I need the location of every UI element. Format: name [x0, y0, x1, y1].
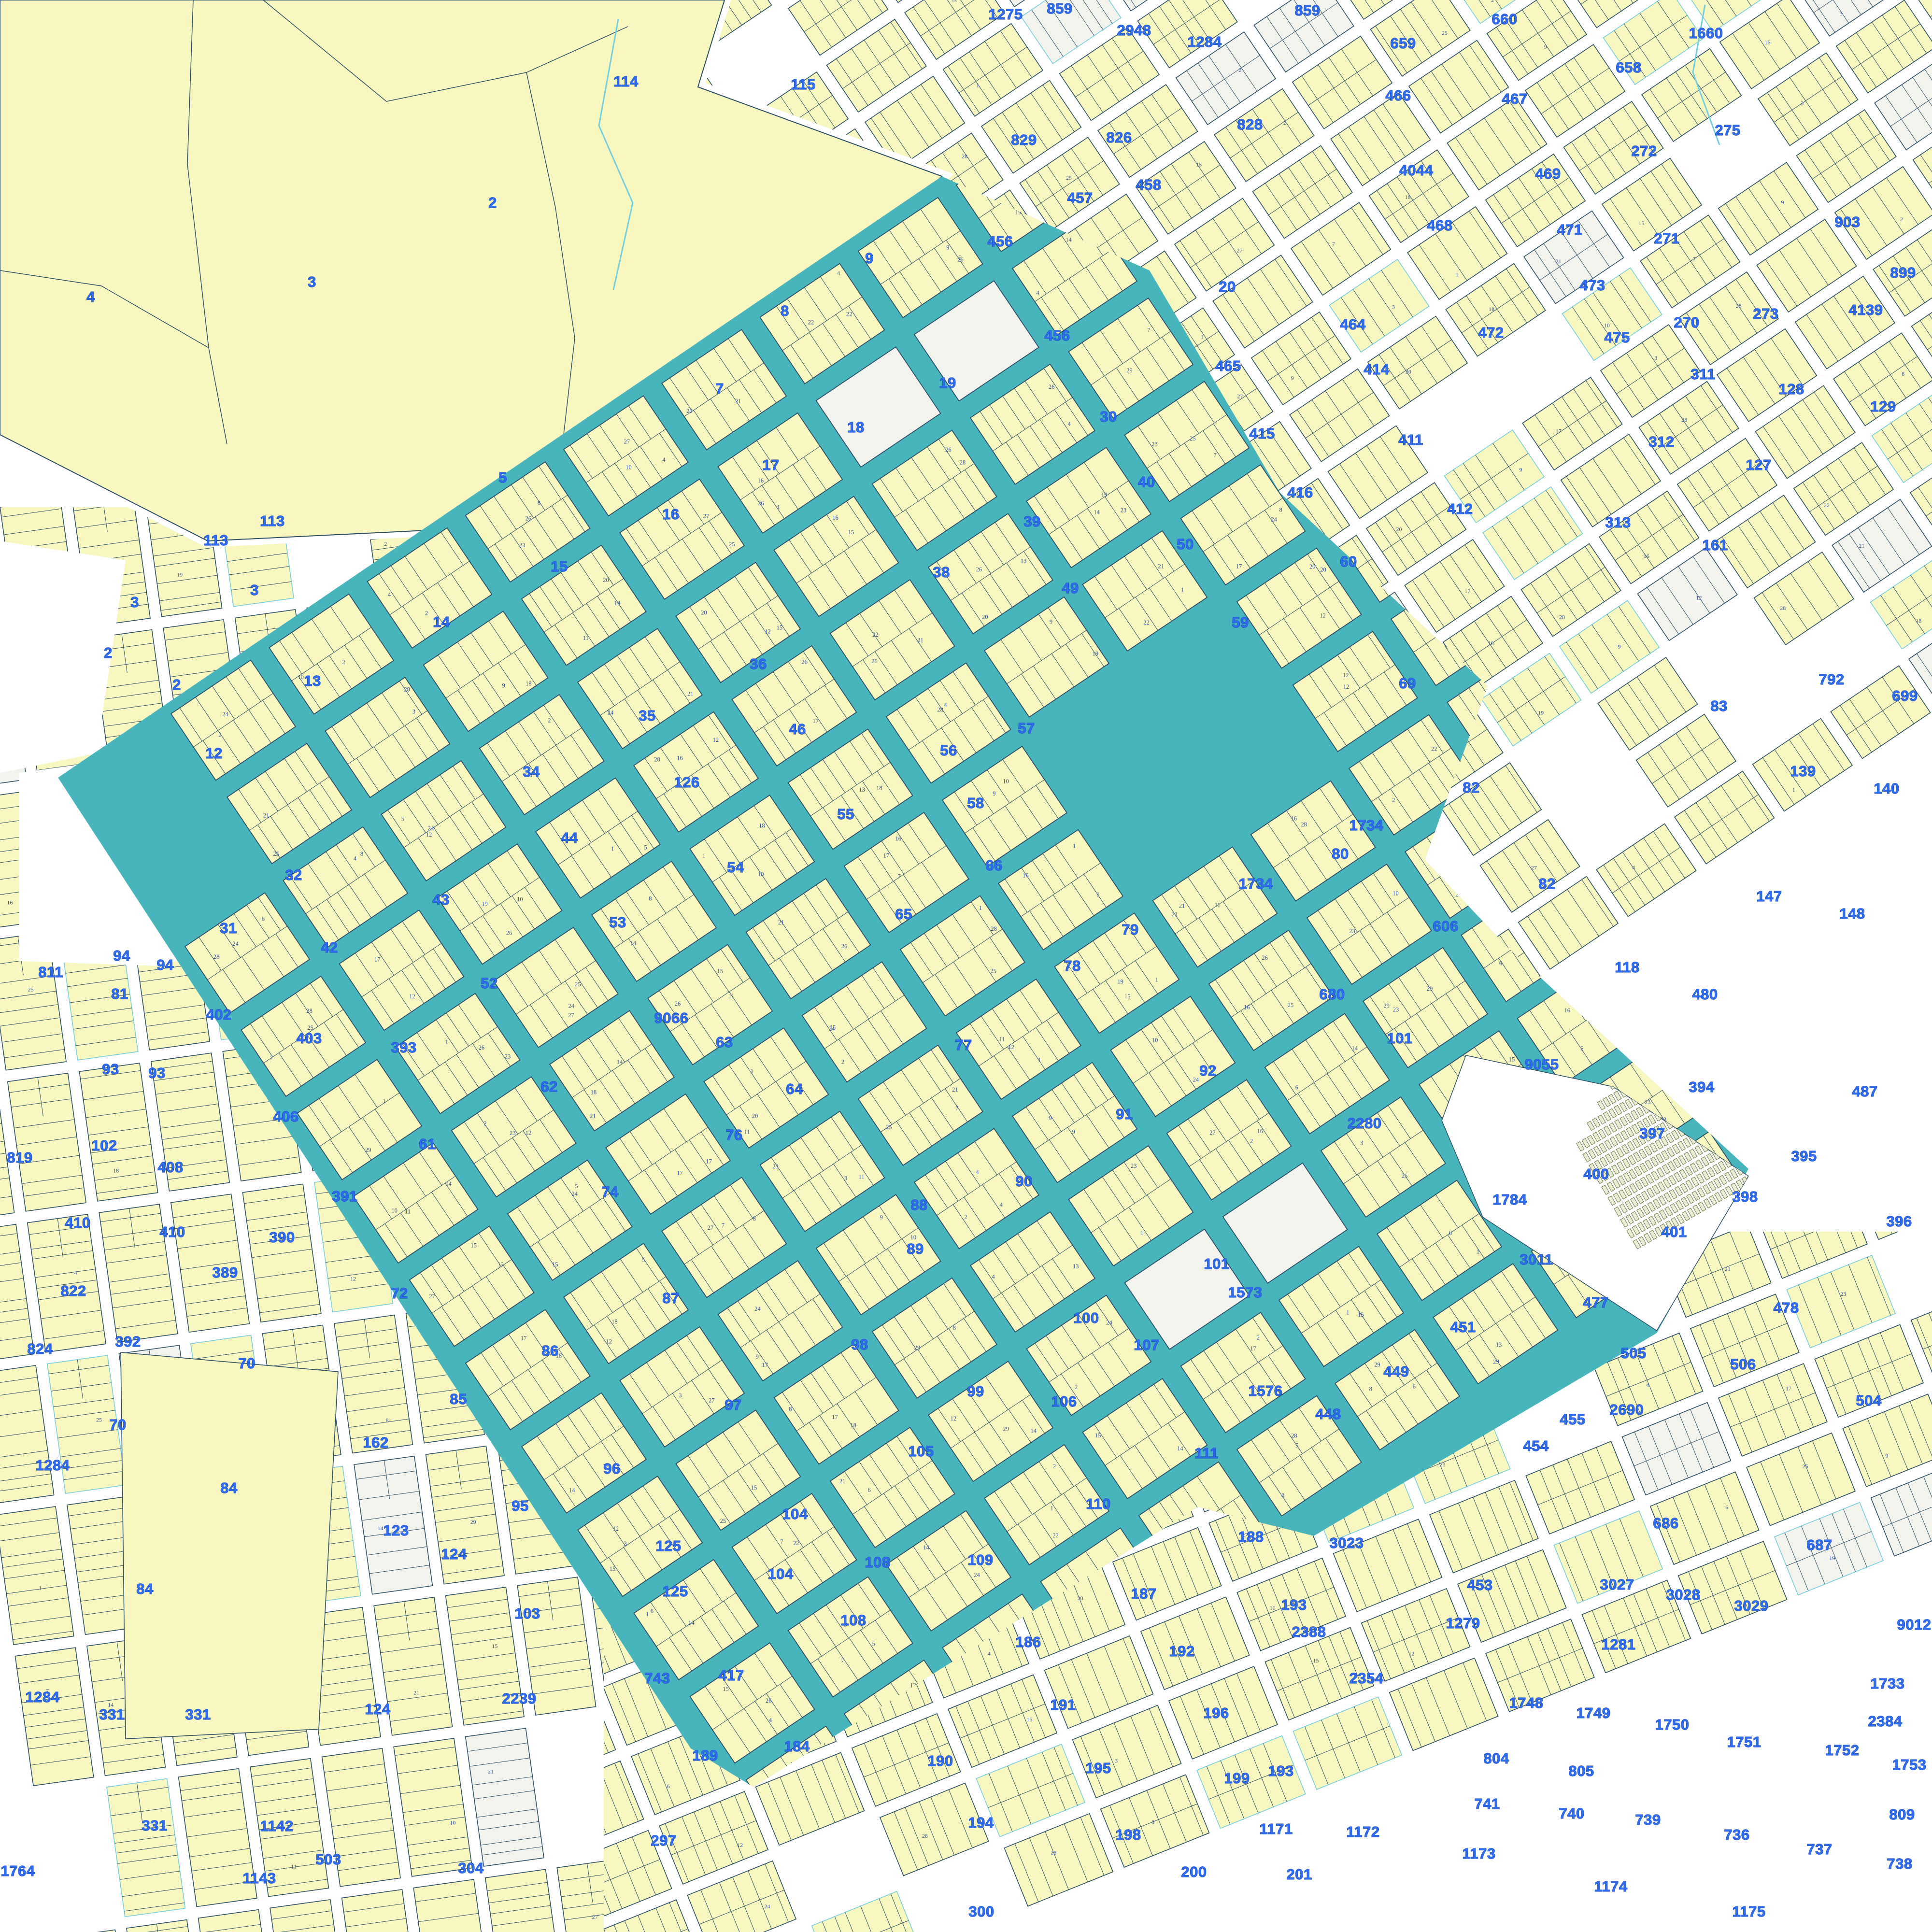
- parcel-number: 12: [765, 628, 771, 635]
- block-label: 199: [1224, 1770, 1250, 1787]
- parcel-number: 8: [1151, 1819, 1154, 1826]
- parcel-number: 28: [404, 686, 410, 693]
- block-label: 1751: [1727, 1733, 1762, 1750]
- block-label: 415: [1249, 425, 1275, 442]
- block-label: 91: [1116, 1106, 1133, 1122]
- parcel-number: 1: [1181, 586, 1184, 593]
- block-label: 1752: [1825, 1742, 1860, 1759]
- block-label: 416: [1287, 484, 1313, 501]
- block-label: 658: [1616, 59, 1641, 76]
- block-label: 397: [1639, 1125, 1665, 1142]
- block-label: 737: [1806, 1841, 1832, 1858]
- parcel-number: 15: [1358, 1311, 1364, 1318]
- parcel-number: 16: [1564, 1007, 1570, 1014]
- block-label: 60: [1340, 553, 1357, 570]
- block-label: 456: [1044, 327, 1070, 344]
- parcel-number: 28: [922, 1833, 928, 1839]
- block-label: 140: [1874, 780, 1899, 797]
- parcel-number: 27: [429, 1293, 435, 1300]
- block-label: 828: [1237, 116, 1263, 133]
- block-label: 84: [136, 1580, 154, 1597]
- block-label: 401: [1661, 1223, 1687, 1240]
- block-label: 456: [987, 233, 1013, 250]
- block-label: 190: [927, 1752, 953, 1769]
- block-label: 191: [1050, 1696, 1076, 1713]
- block-label: 829: [1011, 131, 1037, 148]
- block-label: 389: [212, 1264, 238, 1281]
- parcel-number: 4: [388, 591, 391, 598]
- parcel-number: 2: [1250, 1138, 1253, 1145]
- parcel-number: 10: [910, 1234, 917, 1241]
- parcel-number: 16: [1764, 39, 1770, 45]
- parcel-number: 15: [717, 967, 724, 974]
- block-label: 331: [185, 1706, 211, 1723]
- parcel-number: 22: [808, 319, 814, 326]
- block-label: 740: [1559, 1805, 1584, 1822]
- block-label: 82: [1538, 875, 1555, 892]
- block-label: 686: [1653, 1515, 1678, 1532]
- parcel-number: 3: [1115, 1757, 1118, 1764]
- block-label: 3028: [1666, 1586, 1701, 1603]
- parcel-number: 1: [39, 1585, 42, 1591]
- block-label: 78: [1064, 957, 1080, 974]
- block-label: 85: [450, 1391, 467, 1407]
- parcel-number: 27: [1236, 247, 1242, 254]
- block-label: 1173: [1462, 1845, 1495, 1862]
- block-label: 114: [613, 73, 639, 90]
- parcel-number: 9: [502, 682, 505, 689]
- parcel-number: 16: [1291, 815, 1297, 822]
- parcel-number: 15: [1095, 1432, 1101, 1439]
- block-label: 859: [1294, 2, 1320, 19]
- block-label: 30: [1100, 408, 1117, 425]
- block-label: 93: [148, 1065, 165, 1081]
- parcel-number: 29: [470, 1519, 476, 1525]
- parcel-number: 14: [630, 940, 637, 947]
- parcel-number: 17: [1786, 1385, 1791, 1392]
- parcel-number: 12: [1343, 672, 1349, 679]
- block-label: 77: [955, 1037, 972, 1053]
- parcel-number: 28: [1301, 821, 1307, 828]
- parcel-number: 28: [1736, 302, 1742, 309]
- parcel-number: 1: [1050, 1505, 1053, 1512]
- parcel-number: 1: [1038, 1057, 1041, 1064]
- parcel-number: 21: [263, 812, 270, 819]
- block-label: 313: [1605, 514, 1631, 531]
- block-label: 115: [791, 76, 816, 93]
- block-label: 16: [662, 506, 679, 523]
- block-label: 20: [1219, 278, 1236, 295]
- block-label: 50: [1177, 536, 1193, 553]
- block-label: 2384: [1868, 1713, 1903, 1730]
- parcel-number: 23: [1440, 1461, 1446, 1468]
- parcel-number: 29: [914, 1345, 921, 1351]
- parcel-number: 16: [1244, 1004, 1250, 1010]
- block-label: 110: [1086, 1495, 1111, 1512]
- parcel-number: 10: [1270, 1605, 1276, 1611]
- parcel-number: 5: [1295, 1442, 1298, 1449]
- parcel-number: 2: [483, 1120, 486, 1127]
- parcel-number: 11: [1215, 902, 1221, 909]
- block-label: 1660: [1689, 25, 1723, 42]
- block-label: 454: [1523, 1437, 1548, 1454]
- parcel-number: 7: [897, 873, 900, 880]
- block-label: 453: [1467, 1577, 1492, 1593]
- parcel-number: 10: [450, 1819, 455, 1826]
- block-label: 125: [655, 1537, 681, 1554]
- parcel-number: 2: [1491, 0, 1494, 3]
- parcel-number: 15: [610, 1565, 616, 1572]
- parcel-number: 11: [728, 993, 734, 1000]
- block-label: 111: [1194, 1445, 1219, 1462]
- block-label: 467: [1502, 90, 1527, 107]
- parcel-number: 12: [951, 1415, 957, 1422]
- block-label: 480: [1692, 986, 1718, 1003]
- block-label: 125: [662, 1583, 688, 1600]
- parcel-number: 12: [426, 831, 432, 838]
- block-label: 3023: [1330, 1534, 1364, 1551]
- block-label: 118: [1615, 959, 1640, 976]
- block-label: 477: [1583, 1294, 1608, 1311]
- block-label: 99: [967, 1383, 984, 1400]
- block-label: 194: [968, 1814, 994, 1831]
- parcel-number: 21: [1725, 1265, 1731, 1272]
- parcel-number: 26: [526, 515, 532, 522]
- parcel-number: 5: [872, 1641, 875, 1648]
- parcel-number: 18: [591, 1089, 597, 1096]
- parcel-number: 20: [1396, 526, 1402, 533]
- parcel-number: 24: [1106, 1319, 1112, 1326]
- block-label: 97: [724, 1396, 741, 1413]
- parcel-number: 1: [1201, 333, 1204, 340]
- block-label: 52: [481, 975, 497, 992]
- block-label: 40: [1138, 473, 1155, 490]
- block-label: 859: [1047, 0, 1072, 17]
- parcel-number: 27: [1237, 393, 1243, 399]
- block-label: 103: [514, 1605, 540, 1622]
- block-label: 46: [789, 721, 806, 738]
- parcel-number: 21: [1179, 903, 1185, 909]
- block-label: 824: [27, 1340, 53, 1357]
- block-label: 147: [1756, 888, 1782, 905]
- parcel-number: 14: [1352, 1045, 1358, 1052]
- parcel-number: 17: [1464, 588, 1470, 595]
- parcel-number: 4: [992, 1274, 995, 1280]
- block-label: 4139: [1849, 301, 1883, 318]
- block-label: 478: [1773, 1299, 1799, 1316]
- parcel-number: 9: [1291, 375, 1294, 382]
- block-label: 9055: [1525, 1056, 1559, 1073]
- parcel-number: 4: [1000, 1201, 1003, 1208]
- block-label: 5: [498, 469, 507, 486]
- parcel-number: 26: [766, 1697, 772, 1704]
- parcel-number: 25: [1190, 435, 1195, 442]
- parcel-number: 12: [737, 1842, 743, 1848]
- block-label: 63: [716, 1034, 733, 1051]
- block-label: 64: [786, 1080, 803, 1097]
- parcel-number: 24: [1193, 1076, 1199, 1083]
- block-label: 12: [205, 745, 222, 762]
- parcel-number: 5: [575, 1183, 578, 1190]
- map-viewport[interactable]: 1217251625425142682618201810282721841113…: [0, 0, 1932, 1932]
- parcel-number: 15: [552, 1261, 558, 1268]
- block-label: 34: [523, 763, 540, 780]
- parcel-number: 10: [298, 674, 304, 681]
- parcel-number: 9: [1049, 1115, 1051, 1122]
- parcel-number: 8: [386, 1417, 389, 1423]
- parcel-number: 14: [617, 1059, 623, 1065]
- parcel-number: 10: [391, 1207, 398, 1214]
- parcel-number: 15: [1196, 161, 1202, 168]
- parcel-number: 17: [1250, 1345, 1256, 1352]
- parcel-number: 21: [687, 691, 694, 697]
- parcel-number: 12: [1320, 612, 1325, 619]
- parcel-number: 12: [1696, 594, 1702, 601]
- block-label: 101: [1387, 1030, 1412, 1047]
- parcel-number: 28: [1291, 1433, 1297, 1439]
- block-label: 1284: [1188, 33, 1222, 50]
- block-label: 822: [60, 1282, 86, 1299]
- parcel-number: 24: [829, 1025, 835, 1032]
- parcel-number: 14: [1094, 509, 1100, 516]
- parcel-number: 12: [1343, 683, 1349, 690]
- block-label: 1734: [1350, 817, 1384, 834]
- parcel-number: 10: [1604, 322, 1610, 328]
- block-label: 109: [967, 1551, 993, 1568]
- block-label: 49: [1062, 580, 1079, 597]
- parcel-number: 25: [886, 1124, 892, 1131]
- parcel-number: 14: [378, 1525, 384, 1532]
- parcel-number: 23: [1121, 507, 1127, 514]
- block-label: 468: [1427, 217, 1452, 234]
- parcel-number: 3: [1392, 304, 1395, 311]
- block-label: 186: [1015, 1634, 1041, 1650]
- block-label: 1175: [1732, 1903, 1765, 1920]
- block-label: 1171: [1259, 1820, 1293, 1837]
- block-label: 458: [1136, 176, 1161, 193]
- parcel-number: 28: [1559, 613, 1565, 620]
- block-label: 2: [172, 676, 181, 693]
- parcel-number: 18: [611, 1319, 618, 1325]
- parcel-number: 1: [1073, 843, 1076, 850]
- parcel-number: 1: [1155, 976, 1158, 983]
- block-label: 473: [1579, 277, 1605, 294]
- parcel-number: 15: [723, 1686, 729, 1692]
- block-label: 66: [985, 857, 1002, 874]
- parcel-number: 7: [270, 1054, 273, 1061]
- block-label: 162: [363, 1434, 388, 1451]
- block-label: 414: [1364, 361, 1389, 378]
- block-label: 200: [1181, 1863, 1207, 1880]
- parcel-number: 23: [1840, 1291, 1846, 1297]
- block-label: 104: [767, 1565, 793, 1582]
- block-label: 805: [1568, 1762, 1594, 1779]
- parcel-number: 14: [923, 1544, 929, 1551]
- parcel-number: 16: [7, 899, 13, 906]
- block-label: 2: [104, 644, 113, 661]
- parcel-number: 10: [1152, 1037, 1158, 1043]
- block-label: 108: [865, 1554, 890, 1571]
- parcel-number: 15: [1026, 1716, 1032, 1723]
- parcel-number: 4: [1632, 864, 1635, 870]
- parcel-number: 25: [96, 1417, 102, 1423]
- block-label: 4044: [1399, 162, 1434, 179]
- parcel-number: 24: [754, 1306, 761, 1312]
- block-label: 84: [220, 1479, 238, 1496]
- block-label: 3027: [1600, 1576, 1634, 1593]
- parcel-number: 16: [758, 477, 764, 484]
- block-label: 659: [1390, 35, 1416, 52]
- block-label: 127: [1746, 456, 1771, 473]
- block-label: 76: [725, 1126, 742, 1143]
- parcel-number: 1: [976, 82, 979, 88]
- block-label: 687: [1806, 1536, 1832, 1553]
- parcel-number: 12: [613, 1525, 619, 1532]
- block-label: 1172: [1346, 1823, 1379, 1840]
- block-label: 472: [1478, 324, 1504, 341]
- parcel-number: 2: [548, 717, 551, 724]
- parcel-number: 26: [945, 446, 952, 453]
- block-label: 390: [269, 1229, 295, 1246]
- parcel-number: 24: [764, 1903, 770, 1910]
- parcel-number: 14: [1030, 1428, 1037, 1435]
- parcel-number: 17: [677, 1169, 683, 1176]
- parcel-number: 21: [917, 637, 923, 644]
- parcel-number: 15: [471, 1242, 477, 1249]
- block-label: 2354: [1350, 1670, 1384, 1687]
- block-label: 410: [159, 1223, 185, 1240]
- parcel-number: 27: [592, 1914, 598, 1920]
- parcel-number: 27: [1209, 1129, 1216, 1136]
- block-label: 271: [1654, 230, 1679, 247]
- block-label: 38: [933, 564, 950, 581]
- block-label: 107: [1134, 1336, 1159, 1353]
- block-label: 304: [458, 1860, 483, 1876]
- parcel-number: 4: [662, 456, 666, 463]
- parcel-number: 18: [1489, 306, 1494, 313]
- parcel-number: 17: [521, 1335, 527, 1342]
- parcel-number: 29: [1493, 1358, 1499, 1365]
- block-label: 448: [1315, 1406, 1341, 1422]
- block-label: 736: [1724, 1826, 1749, 1843]
- parcel-number: 29: [1126, 367, 1132, 374]
- parcel-number: 15: [1509, 1056, 1515, 1063]
- block-label: 36: [750, 655, 767, 672]
- block-label: 1576: [1249, 1382, 1283, 1399]
- parcel-number: 25: [575, 981, 581, 988]
- parcel-number: 7: [722, 1222, 724, 1229]
- parcel-number: 20: [982, 614, 988, 621]
- parcel-number: 17: [883, 852, 890, 859]
- parcel-number: 14: [614, 600, 621, 607]
- parcel-number: 19: [1093, 651, 1099, 657]
- parcel-number: 4: [769, 1717, 772, 1724]
- block-label: 74: [601, 1183, 619, 1200]
- parcel-number: 20: [1406, 369, 1411, 375]
- block-label: 35: [639, 707, 655, 724]
- block-label: 469: [1535, 165, 1561, 182]
- parcel-number: 25: [1288, 1002, 1294, 1009]
- block-label: 82: [1463, 779, 1479, 796]
- block-label: 270: [1674, 314, 1699, 331]
- parcel-number: 11: [405, 1208, 411, 1215]
- parcel-number: 28: [962, 153, 967, 160]
- parcel-number: 15: [1124, 993, 1131, 1000]
- parcel-number: 19: [1101, 491, 1108, 498]
- parcel-number: 22: [872, 631, 879, 638]
- block-label: 86: [541, 1342, 558, 1359]
- parcel-number: 8: [360, 851, 363, 857]
- parcel-number: 23: [1349, 928, 1355, 935]
- parcel-number: 12: [409, 993, 415, 1000]
- block-label: 394: [1689, 1079, 1714, 1095]
- block-label: 2280: [1348, 1115, 1382, 1132]
- block-label: 96: [603, 1460, 620, 1477]
- parcel-number: 4: [1067, 421, 1071, 427]
- parcel-number: 27: [568, 1012, 574, 1019]
- block-label: 792: [1818, 671, 1844, 688]
- block-label: 105: [908, 1443, 934, 1460]
- parcel-number: 6: [1295, 1084, 1298, 1091]
- block-label: 195: [1085, 1760, 1111, 1776]
- block-label: 53: [609, 914, 626, 931]
- block-label: 475: [1604, 329, 1630, 346]
- parcel-number: 21: [488, 1768, 494, 1775]
- parcel-number: 1: [1477, 1249, 1479, 1255]
- parcel-number: 4: [944, 702, 947, 709]
- parcel-number: 27: [1531, 865, 1537, 871]
- parcel-number: 1: [979, 905, 982, 911]
- block-label: 680: [1319, 986, 1345, 1003]
- block-label: 408: [157, 1159, 183, 1176]
- block-label: 39: [1023, 513, 1040, 530]
- parcel-number: 25: [1442, 29, 1448, 36]
- parcel-number: 6: [651, 1608, 653, 1615]
- block-label: 660: [1492, 11, 1517, 28]
- parcel-number: 8: [649, 895, 652, 902]
- parcel-number: 12: [1008, 1044, 1014, 1051]
- parcel-number: 20: [686, 408, 693, 414]
- parcel-number: 8: [1281, 1492, 1284, 1499]
- parcel-number: 15: [497, 1261, 504, 1268]
- parcel-number: 23: [519, 542, 526, 549]
- block-label: 104: [782, 1506, 808, 1522]
- block-label: 3: [308, 273, 316, 290]
- block-label: 87: [662, 1290, 679, 1307]
- parcel-number: 11: [999, 1036, 1005, 1043]
- parcel-number: 28: [1051, 1849, 1056, 1856]
- parcel-number: 8: [1369, 1385, 1372, 1392]
- parcel-number: 9: [1050, 619, 1052, 625]
- parcel-number: 12: [526, 1129, 532, 1136]
- block-label: 42: [321, 939, 338, 956]
- block-label: 101: [1204, 1255, 1229, 1272]
- block-label: 457: [1067, 189, 1093, 206]
- parcel-number: 23: [1151, 440, 1158, 447]
- parcel-number: 24: [232, 940, 239, 947]
- parcel-number: 24: [1271, 516, 1277, 523]
- parcel-number: 6: [262, 915, 265, 922]
- block-label: 1749: [1577, 1705, 1611, 1721]
- parcel-number: 8: [953, 1324, 956, 1331]
- block-label: 699: [1892, 687, 1918, 704]
- block-label: 113: [260, 512, 285, 529]
- block-label: 100: [1073, 1309, 1099, 1326]
- block-label: 312: [1648, 433, 1674, 450]
- parcel-number: 17: [1556, 427, 1562, 434]
- parcel-number: 8: [1279, 507, 1282, 513]
- parcel-number: 20: [1309, 563, 1316, 570]
